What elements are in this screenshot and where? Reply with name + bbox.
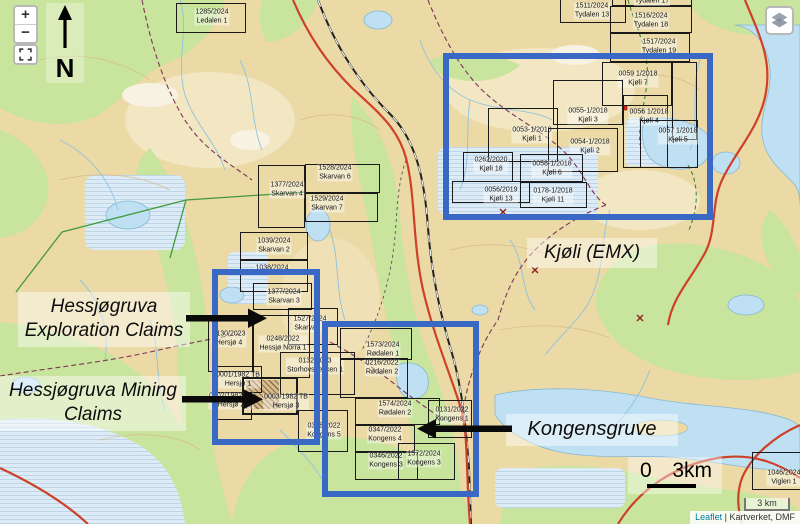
north-arrow: N — [46, 3, 84, 83]
scale-distance-label: 3km — [672, 460, 712, 482]
kjoli-emx-label: Kjøli (EMX) — [527, 238, 657, 268]
mining-claims-label: Hessjøgruva Mining Claims — [0, 376, 186, 431]
claim-label: 1516/2024Tydalen 18 — [633, 12, 669, 29]
attribution-bar: Leaflet | Kartverket, DMF — [690, 511, 800, 524]
zoom-out-button[interactable]: − — [15, 24, 36, 42]
scale-bar — [647, 484, 696, 488]
claim-label: 1039/2024Skarvan 2 — [256, 237, 291, 254]
mining-claims-label-line2: Claims — [0, 403, 186, 427]
zoom-control: + − — [13, 5, 38, 44]
claim-label: 1046/2024Viglen 1 — [766, 469, 800, 486]
north-letter: N — [46, 55, 84, 81]
leaflet-attribution-link[interactable]: Leaflet — [695, 512, 722, 522]
mining-claims-label-line1: Hessjøgruva Mining — [0, 379, 186, 403]
claim-label: 1529/2024Skarvan 7 — [309, 195, 344, 212]
exploration-claims-label-line1: Hessjøgruva — [18, 295, 190, 319]
layers-control[interactable] — [765, 6, 794, 35]
scale-annotation: 0 3km — [628, 457, 722, 494]
fullscreen-button[interactable] — [13, 44, 38, 65]
claim-label: 1285/2024Ledalen 1 — [194, 8, 229, 25]
north-arrow-icon — [50, 5, 80, 49]
hessjogruva-highlight-box — [212, 269, 320, 445]
layers-icon — [770, 11, 789, 30]
kongens-highlight-box — [322, 321, 479, 497]
kongensgruve-label: Kongensgruve — [506, 414, 678, 446]
exploration-claims-label-line2: Exploration Claims — [18, 319, 190, 343]
map-viewport[interactable]: 1285/2024Ledalen 11511/2024Tydalen 13Tyd… — [0, 0, 800, 524]
fullscreen-icon — [19, 48, 32, 61]
claim-label: 1377/2024Skarvan 4 — [269, 181, 304, 198]
zoom-in-button[interactable]: + — [15, 7, 36, 24]
scale-zero-label: 0 — [640, 460, 652, 482]
sources-attribution-link[interactable]: Kartverket, DMF — [729, 512, 795, 522]
kjoli-highlight-box — [443, 53, 713, 220]
scale-control: 3 km — [744, 498, 790, 511]
claim-label: 1528/2024Skarvan 6 — [317, 164, 352, 181]
exploration-claims-label: Hessjøgruva Exploration Claims — [18, 292, 190, 347]
claim-label: 1511/2024Tydalen 13 — [574, 2, 610, 19]
